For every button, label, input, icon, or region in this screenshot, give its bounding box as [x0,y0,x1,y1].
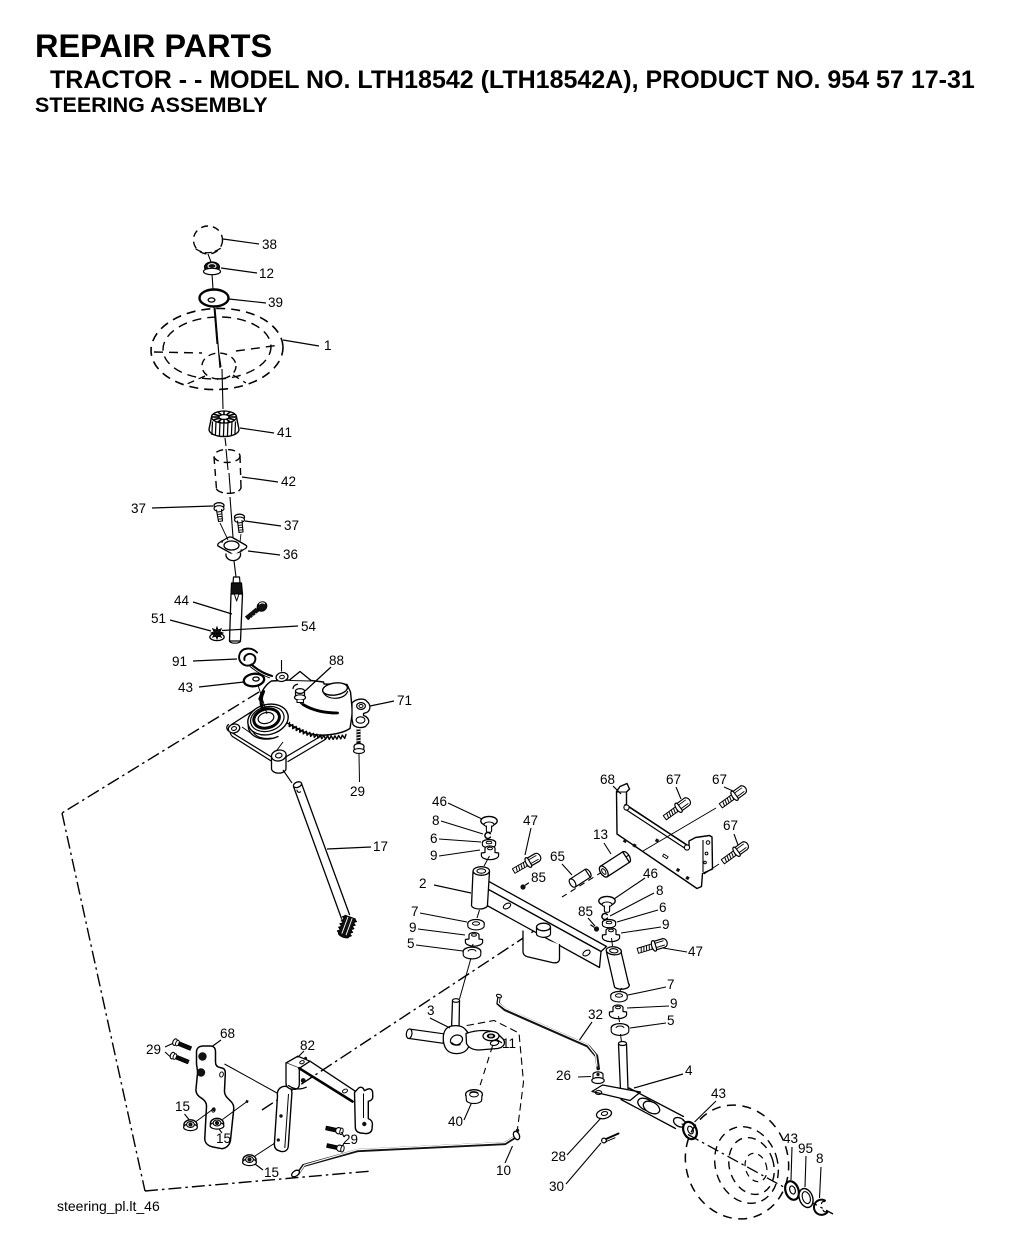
svg-text:6: 6 [659,900,667,915]
svg-text:88: 88 [329,653,344,668]
svg-text:11: 11 [502,1036,516,1051]
svg-text:3: 3 [427,1003,435,1018]
svg-text:TRACTOR - - MODEL NO. LTH18542: TRACTOR - - MODEL NO. LTH18542 (LTH18542… [50,66,975,94]
svg-text:38: 38 [262,237,277,252]
svg-text:29: 29 [146,1042,161,1057]
svg-text:67: 67 [723,818,738,833]
svg-text:82: 82 [300,1038,315,1053]
svg-text:STEERING ASSEMBLY: STEERING ASSEMBLY [35,93,268,117]
svg-text:46: 46 [432,794,447,809]
svg-text:91: 91 [172,654,187,669]
svg-text:68: 68 [220,1026,235,1041]
svg-text:32: 32 [588,1007,603,1022]
svg-text:43: 43 [711,1086,726,1101]
svg-text:29: 29 [350,784,365,799]
svg-text:4: 4 [685,1063,693,1078]
svg-text:44: 44 [174,593,190,608]
svg-text:85: 85 [578,904,593,919]
svg-text:36: 36 [283,547,298,562]
svg-text:54: 54 [301,619,317,634]
svg-text:13: 13 [593,827,608,842]
svg-text:15: 15 [264,1165,279,1180]
svg-text:9: 9 [662,917,670,932]
svg-text:steering_pl.lt_46: steering_pl.lt_46 [57,1198,160,1214]
svg-text:46: 46 [643,866,658,881]
svg-text:28: 28 [551,1149,566,1164]
svg-text:8: 8 [432,813,440,828]
svg-text:1: 1 [324,338,332,353]
svg-text:8: 8 [816,1151,824,1166]
svg-text:42: 42 [281,474,296,489]
svg-text:6: 6 [430,831,438,846]
svg-text:95: 95 [798,1141,813,1156]
svg-text:65: 65 [550,849,565,864]
svg-text:39: 39 [268,295,283,310]
svg-text:15: 15 [216,1131,231,1146]
svg-text:51: 51 [151,611,166,626]
svg-text:37: 37 [131,501,146,516]
svg-text:9: 9 [670,996,678,1011]
svg-text:67: 67 [712,772,727,787]
svg-text:26: 26 [556,1068,571,1083]
svg-text:71: 71 [397,693,412,708]
svg-text:8: 8 [656,883,664,898]
svg-text:7: 7 [411,904,419,919]
svg-text:17: 17 [373,839,388,854]
svg-text:15: 15 [175,1099,190,1114]
svg-text:7: 7 [667,977,675,992]
svg-text:43: 43 [783,1131,798,1146]
svg-text:10: 10 [496,1163,511,1178]
svg-text:37: 37 [284,518,299,533]
svg-text:43: 43 [178,680,193,695]
svg-text:30: 30 [549,1179,564,1194]
svg-text:29: 29 [343,1132,358,1147]
svg-text:9: 9 [409,920,417,935]
svg-text:2: 2 [419,876,427,891]
svg-text:5: 5 [667,1013,675,1028]
svg-text:47: 47 [523,813,538,828]
svg-text:REPAIR PARTS: REPAIR PARTS [35,28,272,64]
svg-text:12: 12 [259,266,274,281]
svg-text:41: 41 [277,425,292,440]
svg-text:9: 9 [430,848,438,863]
svg-text:68: 68 [600,772,615,787]
svg-text:47: 47 [688,944,703,959]
svg-text:5: 5 [407,936,415,951]
svg-text:67: 67 [666,772,681,787]
svg-text:85: 85 [531,870,546,885]
svg-text:40: 40 [448,1114,463,1129]
